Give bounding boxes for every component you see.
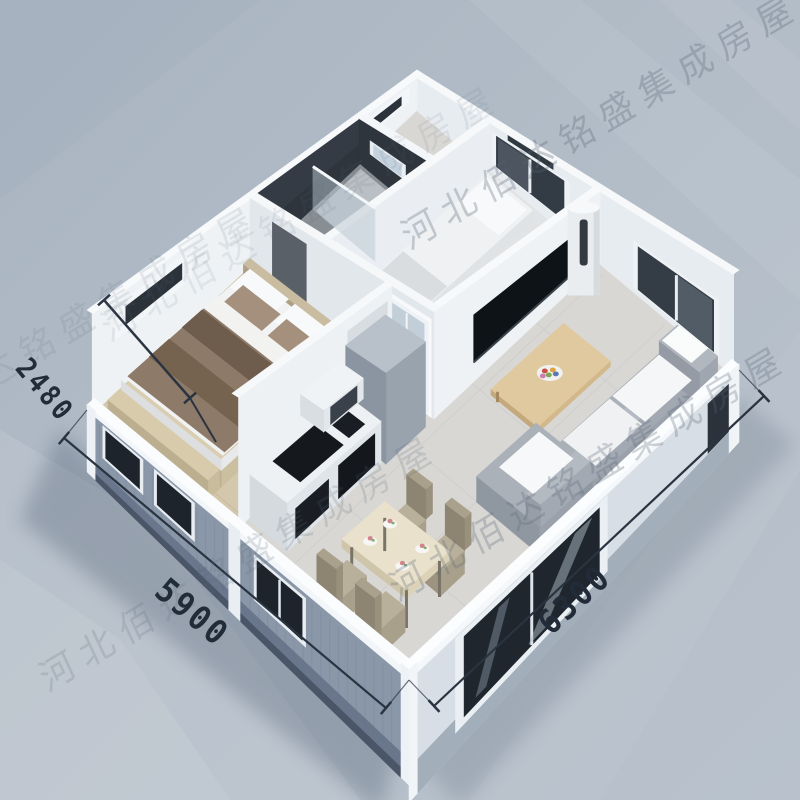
leaf xyxy=(372,539,375,542)
leaf xyxy=(424,547,427,550)
fruit xyxy=(550,368,556,373)
fruit xyxy=(546,373,552,378)
fruit xyxy=(540,374,546,379)
corner-post-w xyxy=(87,404,95,480)
column-ac-shade xyxy=(594,208,600,296)
leaf xyxy=(391,522,394,525)
fruit xyxy=(553,372,559,377)
leaf xyxy=(404,564,407,567)
floorplan-render xyxy=(0,0,800,800)
column-ac-top xyxy=(568,202,600,214)
dining-chair-back xyxy=(375,592,382,634)
wall-post-mid xyxy=(229,522,240,621)
floorplan-image: 河北佰达铭盛集成房屋 河北佰达铭盛集成房屋 河北佰达铭盛集成房屋 河北佰达铭盛集… xyxy=(0,0,800,800)
fruit xyxy=(542,369,548,374)
dining-chair-back xyxy=(426,483,433,519)
corner-post-e xyxy=(729,364,739,453)
dining-chair-back xyxy=(465,513,472,551)
dining-chair-back xyxy=(336,563,343,603)
corner-post-s xyxy=(409,662,417,800)
column-ac-vent xyxy=(580,220,588,266)
